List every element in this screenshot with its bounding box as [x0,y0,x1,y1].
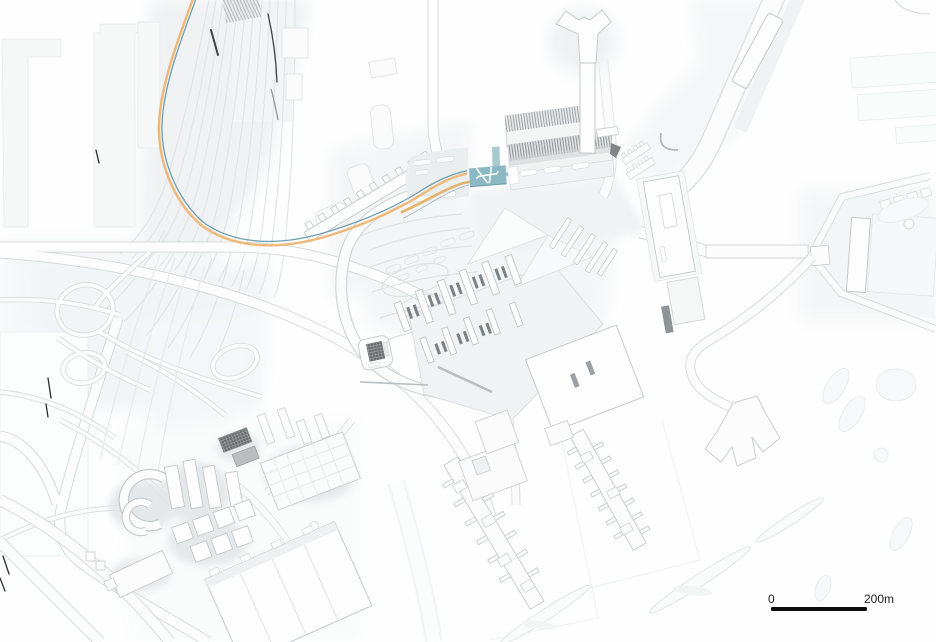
svg-text:0: 0 [768,592,775,606]
svg-text:200m: 200m [864,592,894,606]
